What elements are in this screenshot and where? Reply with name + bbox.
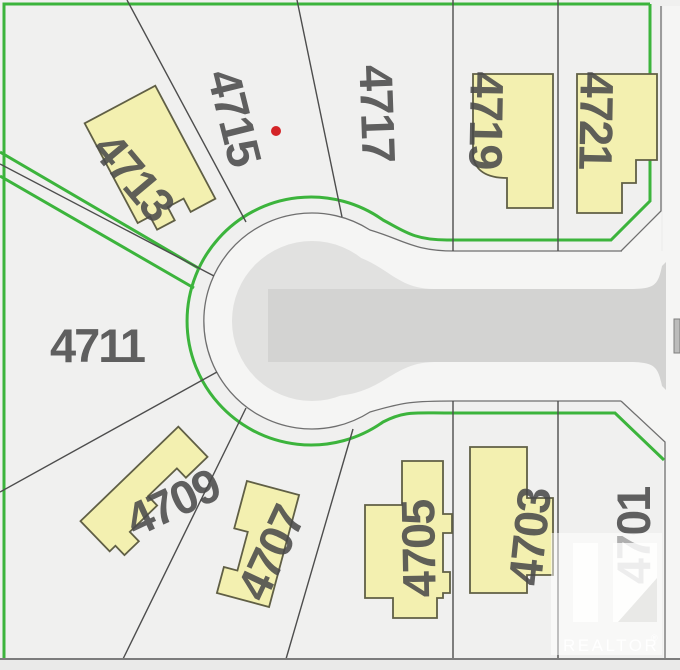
road-edge-widget [674, 319, 680, 353]
lot-label-4721: 4721 [569, 71, 624, 169]
lot-label-4719: 4719 [459, 71, 514, 169]
red-dot-marker [271, 126, 281, 136]
lot-label-4717: 4717 [349, 64, 405, 163]
bottom-road-strip [0, 660, 680, 670]
lot-label-4711: 4711 [50, 319, 145, 372]
watermark-registered-mark: ® [651, 633, 658, 643]
watermark-brand-text: REALTOR [563, 636, 659, 655]
lot-label-4705: 4705 [391, 499, 446, 597]
realtor-logo-bar [573, 543, 598, 622]
plat-map: 4711471347154717471947214709470747054703… [0, 0, 680, 670]
plat-map-stage: 4711471347154717471947214709470747054703… [0, 0, 680, 670]
